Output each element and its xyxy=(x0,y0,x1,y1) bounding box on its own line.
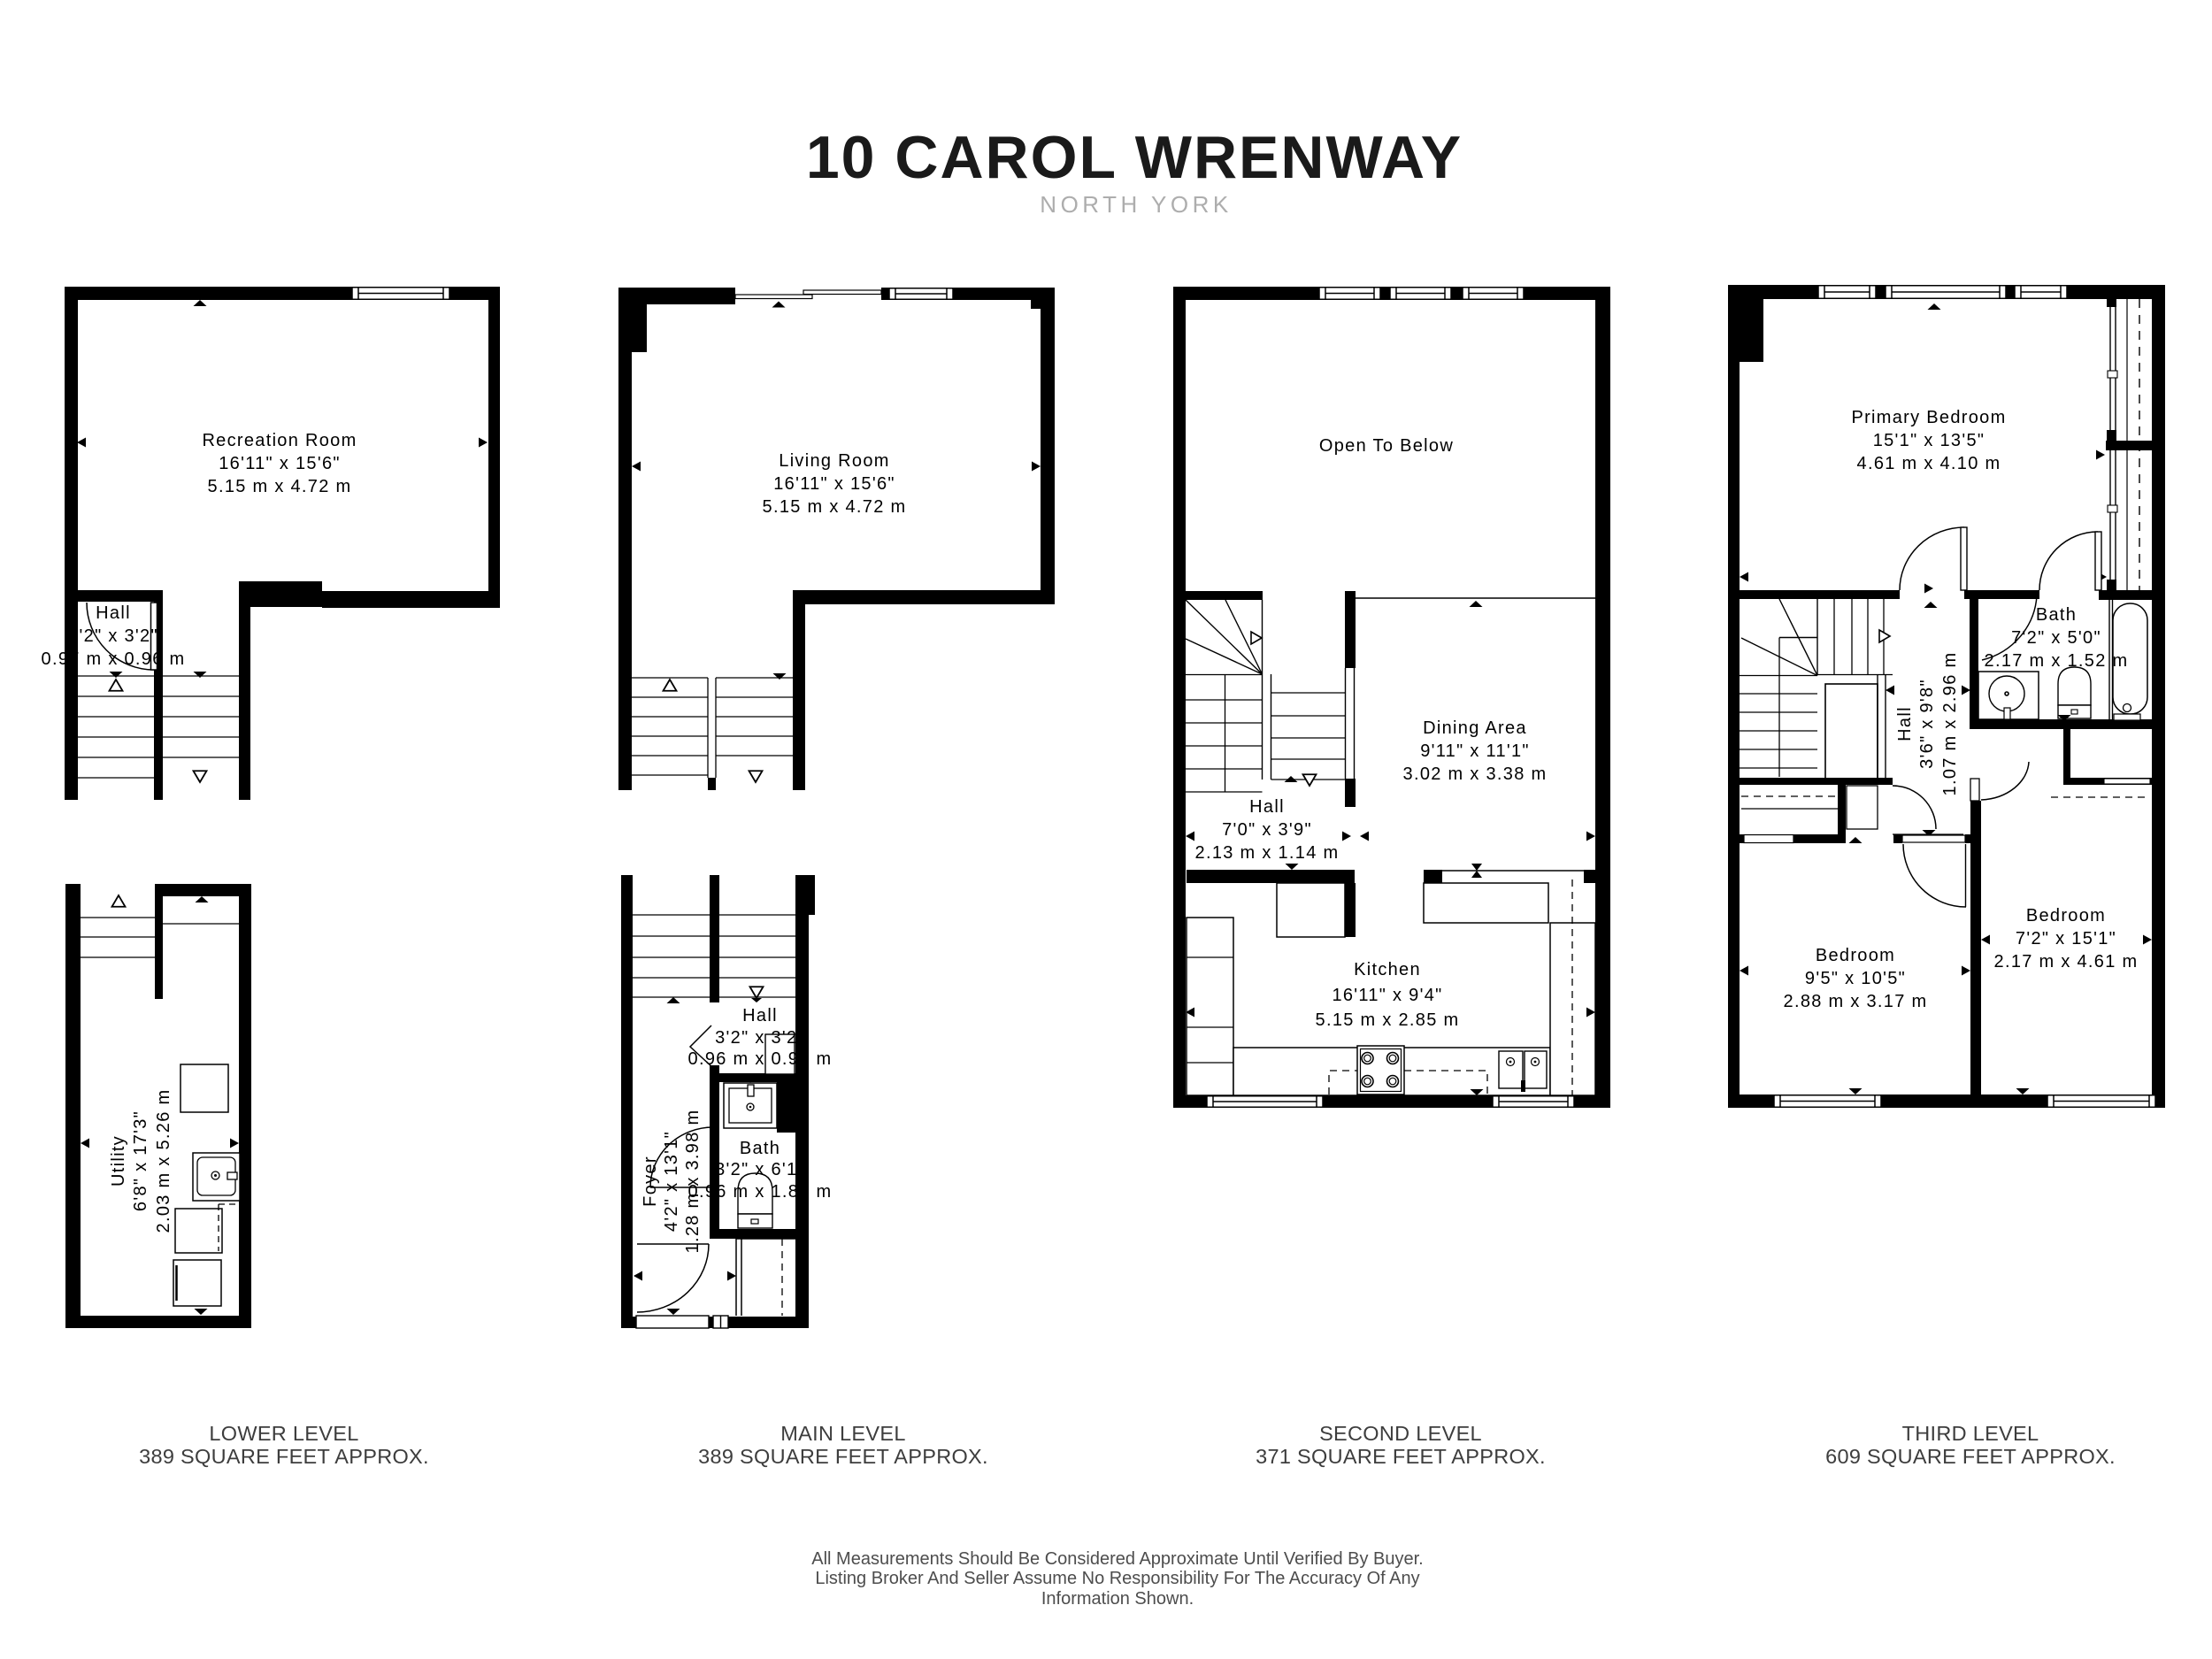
svg-text:Primary Bedroom: Primary Bedroom xyxy=(1851,408,2006,427)
svg-text:7'2" x 5'0": 7'2" x 5'0" xyxy=(2011,628,2101,648)
svg-text:Bath: Bath xyxy=(740,1139,780,1158)
svg-text:Hall: Hall xyxy=(96,603,131,623)
svg-text:2.13 m x 1.14 m: 2.13 m x 1.14 m xyxy=(1195,843,1340,863)
svg-text:Dining Area: Dining Area xyxy=(1423,718,1527,738)
svg-text:Utility: Utility xyxy=(109,1135,128,1187)
svg-text:3'2" x 3'2": 3'2" x 3'2" xyxy=(715,1028,805,1048)
svg-text:0.97 m x 0.96 m: 0.97 m x 0.96 m xyxy=(42,649,186,669)
svg-text:5.15 m x 4.72 m: 5.15 m x 4.72 m xyxy=(763,497,907,517)
svg-text:Bedroom: Bedroom xyxy=(2026,906,2106,926)
svg-text:MAIN LEVEL: MAIN LEVEL xyxy=(780,1422,905,1445)
svg-text:3'2" x 3'2": 3'2" x 3'2" xyxy=(68,626,158,646)
svg-text:Recreation Room: Recreation Room xyxy=(202,431,357,450)
svg-text:THIRD LEVEL: THIRD LEVEL xyxy=(1902,1422,2039,1445)
svg-text:3'6" x 9'8": 3'6" x 9'8" xyxy=(1917,679,1937,769)
svg-text:7'2" x 15'1": 7'2" x 15'1" xyxy=(2016,929,2116,949)
svg-text:7'0" x 3'9": 7'0" x 3'9" xyxy=(1222,820,1312,840)
svg-text:LOWER LEVEL: LOWER LEVEL xyxy=(209,1422,358,1445)
svg-text:Listing Broker And Seller Assu: Listing Broker And Seller Assume No Resp… xyxy=(815,1569,1419,1588)
svg-text:16'11" x 9'4": 16'11" x 9'4" xyxy=(1332,986,1442,1005)
svg-text:5.15 m x 4.72 m: 5.15 m x 4.72 m xyxy=(208,477,352,496)
svg-text:Open To Below: Open To Below xyxy=(1319,436,1454,456)
svg-text:16'11" x 15'6": 16'11" x 15'6" xyxy=(219,454,341,473)
svg-text:SECOND LEVEL: SECOND LEVEL xyxy=(1319,1422,1482,1445)
svg-text:5.15 m x 2.85 m: 5.15 m x 2.85 m xyxy=(1316,1010,1460,1030)
svg-text:2.17 m x 1.52 m: 2.17 m x 1.52 m xyxy=(1985,651,2129,671)
svg-text:Hall: Hall xyxy=(1895,706,1915,741)
svg-text:6'8" x 17'3": 6'8" x 17'3" xyxy=(131,1110,150,1211)
svg-text:Bedroom: Bedroom xyxy=(1816,946,1895,965)
svg-text:4'2" x 13'1": 4'2" x 13'1" xyxy=(662,1131,681,1232)
svg-text:609 SQUARE FEET APPROX.: 609 SQUARE FEET APPROX. xyxy=(1825,1445,2116,1468)
svg-text:389 SQUARE FEET APPROX.: 389 SQUARE FEET APPROX. xyxy=(698,1445,988,1468)
svg-text:10 CAROL WRENWAY: 10 CAROL WRENWAY xyxy=(806,124,1463,191)
svg-text:2.17 m x 4.61 m: 2.17 m x 4.61 m xyxy=(1994,952,2139,972)
svg-text:Foyer: Foyer xyxy=(641,1156,660,1207)
svg-text:All Measurements Should Be Con: All Measurements Should Be Considered Ap… xyxy=(811,1549,1423,1569)
svg-text:Living Room: Living Room xyxy=(779,451,889,471)
svg-text:Hall: Hall xyxy=(1249,797,1285,817)
svg-text:9'5" x 10'5": 9'5" x 10'5" xyxy=(1805,969,1906,988)
svg-text:16'11" x 15'6": 16'11" x 15'6" xyxy=(773,474,895,494)
svg-text:3'2" x 6'1": 3'2" x 6'1" xyxy=(715,1160,805,1179)
svg-text:Information Shown.: Information Shown. xyxy=(1041,1589,1194,1609)
svg-text:0.96 m x 1.84 m: 0.96 m x 1.84 m xyxy=(688,1182,833,1202)
svg-text:2.03 m x 5.26 m: 2.03 m x 5.26 m xyxy=(154,1089,173,1233)
svg-text:1.07 m x 2.96 m: 1.07 m x 2.96 m xyxy=(1940,652,1960,796)
svg-text:9'11" x 11'1": 9'11" x 11'1" xyxy=(1420,741,1530,761)
svg-text:1.28 m x 3.98 m: 1.28 m x 3.98 m xyxy=(683,1110,703,1254)
svg-text:Hall: Hall xyxy=(742,1006,778,1025)
svg-text:389 SQUARE FEET APPROX.: 389 SQUARE FEET APPROX. xyxy=(139,1445,429,1468)
svg-text:371 SQUARE FEET APPROX.: 371 SQUARE FEET APPROX. xyxy=(1256,1445,1546,1468)
svg-text:15'1" x 13'5": 15'1" x 13'5" xyxy=(1873,431,1985,450)
svg-text:0.96 m x 0.97 m: 0.96 m x 0.97 m xyxy=(688,1049,833,1069)
svg-text:Bath: Bath xyxy=(2036,605,2077,625)
svg-text:4.61 m x 4.10 m: 4.61 m x 4.10 m xyxy=(1857,454,2001,473)
svg-text:3.02 m x 3.38 m: 3.02 m x 3.38 m xyxy=(1403,764,1548,784)
svg-text:NORTH YORK: NORTH YORK xyxy=(1040,191,1232,218)
svg-text:2.88 m x 3.17 m: 2.88 m x 3.17 m xyxy=(1784,992,1928,1011)
svg-text:Kitchen: Kitchen xyxy=(1354,960,1421,979)
